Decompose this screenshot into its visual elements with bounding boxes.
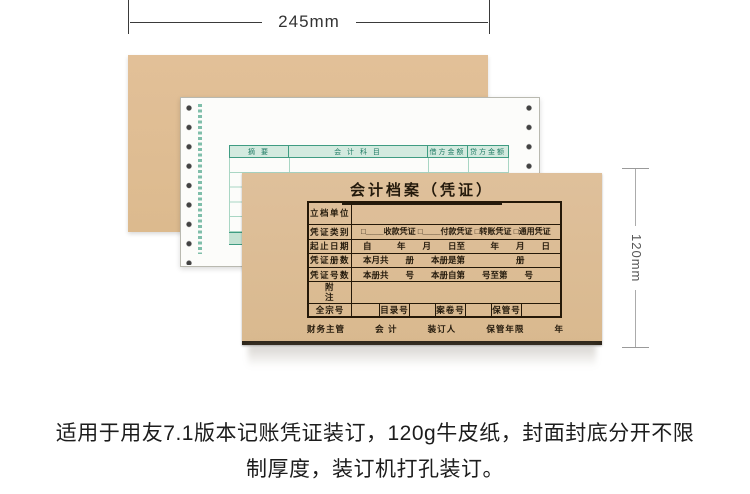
row-value: 自 年 月 日至 年 月 日 [352,240,560,253]
product-description: 适用于用友7.1版本记账凭证装订，120g牛皮纸，封面封底分开不限 制厚度，装订… [0,416,750,488]
dimension-line [635,169,636,226]
vertical-print-mark [198,104,202,254]
archive-number-row: 全宗号 目录号 案卷号 保管号 [309,304,560,316]
description-line-2: 制厚度，装订机打孔装订。 [0,452,750,488]
height-dimension-label: 120mm [629,226,644,290]
table-row: 凭证册数 本月共 册 本册是第 册 [309,254,560,269]
dimension-line [635,290,636,347]
description-line-1: 适用于用友7.1版本记账凭证装订，120g牛皮纸，封面封底分开不限 [0,416,750,452]
table-row: 起止日期 自 年 月 日至 年 月 日 [309,240,560,254]
sig-binder: 装订人 [428,323,457,335]
tractor-feed-holes-left [185,101,193,265]
voucher-col-summary: 摘 要 [229,146,289,157]
archive-cell-blank [522,304,560,316]
voucher-col-credit: 贷方金额 [468,146,509,157]
row-label: 立档单位 [309,203,352,224]
voucher-col-debit: 借方金额 [428,146,468,157]
archive-cell-mulu: 目录号 [380,304,410,316]
width-dimension: 245mm [128,0,490,36]
height-dimension: 120mm [622,168,650,348]
cover-signature-row: 财务主管 会 计 装订人 保管年限 年 [307,323,564,335]
archive-cell-baoguan: 保管号 [492,304,522,316]
dimension-tick [489,0,490,34]
table-row: 立档单位 [309,203,560,225]
row-value: 本月共 册 本册是第 册 [352,254,560,268]
row-value: □____收款凭证 □____付款凭证 □转账凭证 □通用凭证 [352,225,560,239]
dimension-line [356,22,488,23]
row-value [352,282,560,303]
voucher-col-account: 会 计 科 目 [289,146,428,157]
row-label: 附注 [309,282,352,303]
row-label: 起止日期 [309,240,352,253]
row-label: 凭证号数 [309,268,352,281]
kraft-front-cover: 会计档案（凭证） 立档单位 凭证类别 □____收款凭证 □____付款凭证 □… [242,173,602,345]
width-dimension-label: 245mm [262,12,356,32]
dimension-tick [622,347,649,348]
voucher-table-header: 摘 要 会 计 科 目 借方金额 贷方金额 [229,145,509,158]
table-row: 凭证号数 本册共 号 本册自第 号至第 号 [309,268,560,282]
dimension-line [130,22,262,23]
sig-retention-period: 保管年限 [486,323,524,335]
row-value: 本册共 号 本册自第 号至第 号 [352,268,560,281]
sig-finance-director: 财务主管 [307,323,345,335]
archive-cell-anjuan: 案卷号 [436,304,466,316]
table-row: 附注 [309,282,560,304]
row-label: 凭证册数 [309,254,352,268]
archive-cell-quanzong: 全宗号 [309,304,352,316]
archive-cell-blank [410,304,436,316]
archive-info-table: 立档单位 凭证类别 □____收款凭证 □____付款凭证 □转账凭证 □通用凭… [307,201,562,318]
dimension-tick [128,0,129,34]
sig-accountant: 会 计 [375,323,397,335]
archive-cell-blank [466,304,492,316]
archive-cell-blank [352,304,380,316]
sig-year: 年 [554,323,564,335]
product-image: 245mm 摘 要 会 计 科 目 借方金额 贷方金额 会计档案（凭证） [0,0,750,494]
table-row: 凭证类别 □____收款凭证 □____付款凭证 □转账凭证 □通用凭证 [309,225,560,240]
row-label: 凭证类别 [309,225,352,239]
row-value [352,203,560,224]
